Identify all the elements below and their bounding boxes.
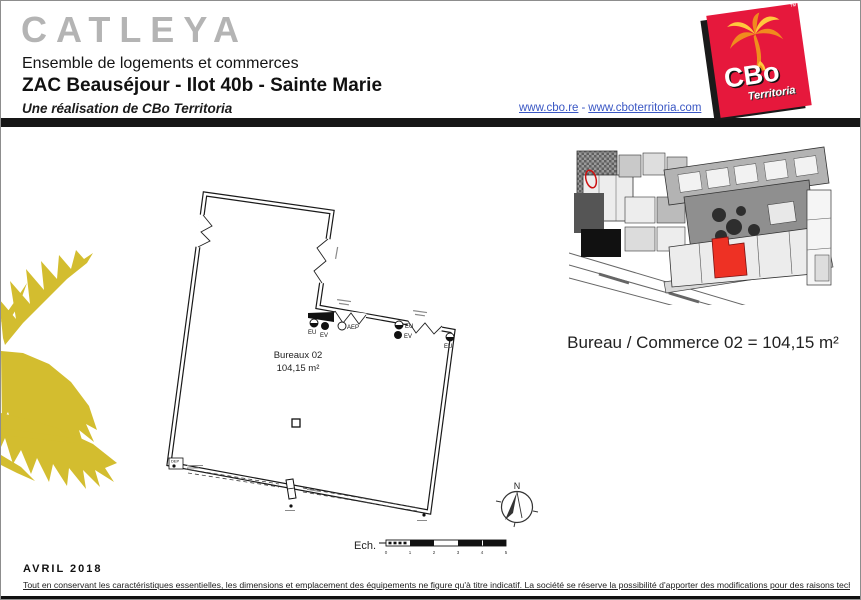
scale-tick: 5 — [505, 550, 508, 555]
page-bottom-rule — [1, 596, 861, 599]
room-label: Bureaux 02 — [274, 350, 323, 361]
page-title: CATLEYA — [21, 9, 248, 51]
website-links: www.cbo.re-www.cboterritoria.com — [519, 102, 701, 114]
aep-marker — [338, 322, 346, 330]
small-annotation-marks — [335, 247, 427, 316]
aep-label: AEP — [347, 325, 359, 331]
compass: N — [496, 481, 538, 527]
right-building-block — [807, 190, 831, 285]
small-annotation-mark — [417, 520, 427, 521]
corner-marker-dot — [422, 513, 425, 516]
column-marker — [292, 419, 300, 427]
scale-label: Ech. — [354, 540, 376, 552]
cbo-territoria-logo: CBo Territoria ™ — [704, 4, 810, 124]
scale-tick: 0 — [385, 550, 388, 555]
room-area-label: 104,15 m² — [277, 363, 320, 374]
scale-tick: 3 — [457, 550, 460, 555]
eu-label: EU — [444, 344, 452, 350]
ev-label: EV — [404, 334, 412, 340]
ev-label: EV — [320, 333, 328, 339]
eu-label: EU — [308, 330, 316, 336]
footer-date: AVRIL 2018 — [23, 563, 103, 575]
footer-disclaimer: Tout en conservant les caractéristiques … — [23, 580, 850, 590]
compass-needle — [505, 492, 517, 520]
link-cboterritoria[interactable]: www.cboterritoria.com — [588, 102, 701, 114]
logo-card: CBo Territoria ™ — [706, 3, 811, 118]
link-separator: - — [578, 102, 588, 114]
byline: Une réalisation de CBo Territoria — [22, 101, 232, 116]
subtitle: Ensemble de logements et commerces — [22, 55, 299, 73]
palm-frond-decoration — [1, 223, 136, 491]
unit-summary: Bureau / Commerce 02 = 104,15 m² — [553, 333, 853, 353]
ev-marker — [394, 331, 402, 339]
link-cbo[interactable]: www.cbo.re — [519, 102, 578, 114]
project-line: ZAC Beauséjour - Ilot 40b - Sainte Marie — [22, 75, 382, 97]
site-plan-thumbnail — [569, 135, 834, 305]
scale-bar: Ech. 0 1 2 3 4 5 — [354, 540, 508, 555]
ev-marker — [321, 322, 329, 330]
eu-label: EU — [405, 324, 413, 330]
logo-trademark: ™ — [789, 3, 797, 11]
north-label: N — [514, 481, 521, 491]
scale-tick: 4 — [481, 550, 484, 555]
scale-tick: 2 — [433, 550, 436, 555]
plan-sheet: CATLEYA Ensemble de logements et commerc… — [0, 0, 861, 600]
dep-label: DEP — [171, 459, 180, 464]
scale-tick: 1 — [409, 550, 412, 555]
floor-plan-drawing: EU EV AEP EU EV EU Bureaux 02 104,15 m² — [141, 184, 561, 564]
